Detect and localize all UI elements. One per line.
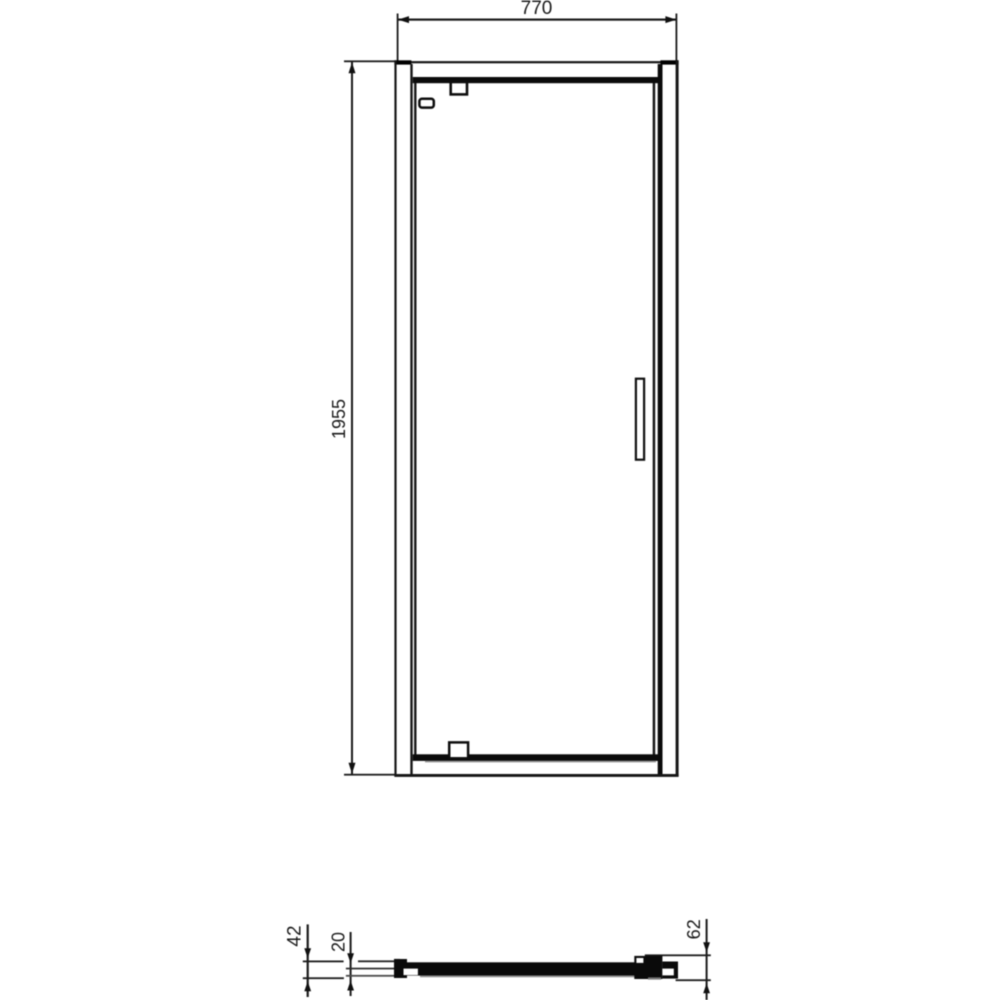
svg-text:1955: 1955 bbox=[329, 399, 349, 439]
svg-text:42: 42 bbox=[285, 925, 306, 946]
svg-text:20: 20 bbox=[329, 932, 349, 952]
svg-text:770: 770 bbox=[521, 0, 553, 19]
svg-text:62: 62 bbox=[684, 919, 704, 939]
